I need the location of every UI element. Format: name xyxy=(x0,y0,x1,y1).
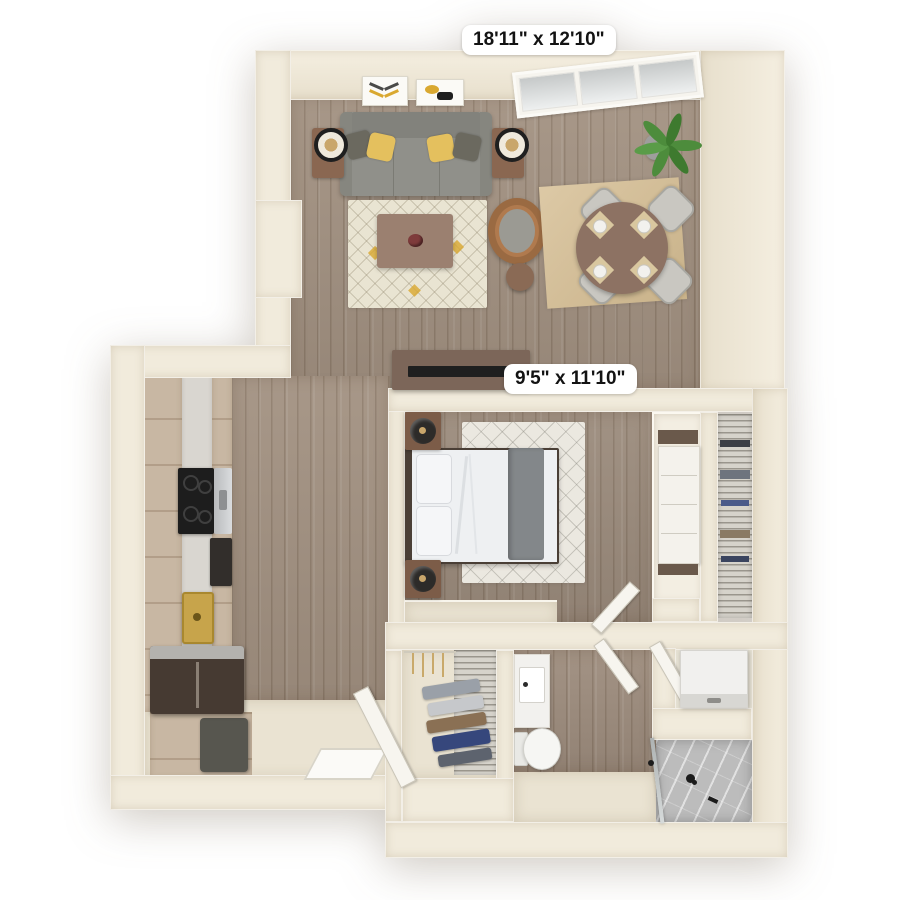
refrigerator-handle xyxy=(196,662,199,708)
window-pane xyxy=(638,58,697,98)
toilet xyxy=(514,728,558,768)
burner xyxy=(198,480,212,494)
linen-shelf-item-2 xyxy=(720,470,750,479)
bed-throw-blanket xyxy=(508,448,544,560)
dresser-shelf-dark-top xyxy=(658,430,698,444)
place-setting xyxy=(630,256,658,284)
wall-bottom-left xyxy=(110,775,390,810)
armchair-cushion xyxy=(499,209,535,253)
hanger xyxy=(412,653,414,674)
coffee-table xyxy=(377,214,453,268)
burner xyxy=(183,506,199,522)
wall-mid-band xyxy=(385,622,788,650)
place-setting xyxy=(586,256,614,284)
hallway-floor xyxy=(232,376,390,702)
dresser-drawer-line xyxy=(661,533,697,534)
range-cooktop xyxy=(178,468,214,534)
rug-diamond-accent xyxy=(408,284,421,297)
washer-handle xyxy=(707,698,721,703)
place-setting xyxy=(630,211,658,239)
potted-plant xyxy=(640,112,696,168)
washer-dryer xyxy=(680,650,748,708)
burner xyxy=(198,510,212,524)
bed-pillow xyxy=(416,454,452,504)
linen-shelf-item-3 xyxy=(721,500,749,506)
window-pane xyxy=(578,65,637,105)
nightstand-lamp-bottom xyxy=(410,566,436,592)
oven-display xyxy=(219,490,227,510)
dresser xyxy=(658,446,700,564)
wall-closet-bath-divider xyxy=(496,650,514,792)
throw-pillow-dark xyxy=(452,132,483,163)
wall-closet-bottom-fill xyxy=(402,778,514,822)
wall-under-nook xyxy=(652,598,700,622)
dishwasher xyxy=(210,538,232,586)
abstract-black-blob xyxy=(437,92,453,100)
plate xyxy=(634,262,654,282)
dresser-drawer-line xyxy=(661,475,697,476)
throw-pillow-yellow xyxy=(426,133,456,163)
sink-drain xyxy=(193,613,201,621)
duvet-fold xyxy=(455,456,468,554)
wall-bottom-right xyxy=(385,822,788,858)
toilet-bowl xyxy=(523,728,561,770)
apartment-floorplan: 18'11" x 12'10" 9'5" x 11'10" xyxy=(0,0,900,900)
refrigerator xyxy=(150,646,244,714)
vanity-faucet xyxy=(523,682,528,687)
ottoman xyxy=(506,263,534,291)
table-lamp-left xyxy=(314,128,348,162)
hanger xyxy=(422,653,424,677)
bathroom-beige-floor xyxy=(514,772,656,822)
bed-pillow xyxy=(416,506,452,556)
wall-bedroom-left xyxy=(388,388,405,650)
bedroom-vestibule-floor xyxy=(405,600,557,624)
wall-art-abstract xyxy=(416,79,464,106)
shower-floor xyxy=(656,740,752,822)
shower-control-valve xyxy=(686,774,695,783)
plate xyxy=(590,217,610,237)
dimension-label-bedroom: 9'5" x 11'10" xyxy=(504,364,637,394)
shower-door-handle xyxy=(648,760,654,766)
floorplan-canvas: 18'11" x 12'10" 9'5" x 11'10" xyxy=(0,0,900,900)
trash-bin xyxy=(200,718,248,772)
dresser-drawer-line xyxy=(661,504,697,505)
linen-shelf-item-1 xyxy=(720,440,750,447)
hanger xyxy=(432,653,434,674)
burner xyxy=(183,475,199,491)
wall-right-upper xyxy=(700,50,785,390)
refrigerator-top xyxy=(150,646,244,659)
throw-pillow-yellow xyxy=(366,132,397,163)
bathroom-vanity xyxy=(514,654,550,728)
tv xyxy=(408,366,514,377)
wall-left-lower xyxy=(110,345,145,810)
range-front-stainless xyxy=(214,468,232,534)
place-setting xyxy=(586,211,614,239)
nightstand-lamp-top xyxy=(410,418,436,444)
linen-shelf-item-4 xyxy=(720,530,750,538)
bed xyxy=(405,448,559,564)
armchair xyxy=(488,198,546,264)
dresser-shelf-dark-bottom xyxy=(658,564,698,575)
window-pane xyxy=(519,72,578,112)
plate xyxy=(634,217,654,237)
duvet-fold xyxy=(469,454,478,554)
coffee-table-centerpiece xyxy=(408,234,423,247)
wall-nook-linen-divider xyxy=(700,412,718,622)
dining-table xyxy=(576,202,668,294)
sofa-armrest-right xyxy=(480,112,492,196)
dimension-label-living-dining: 18'11" x 12'10" xyxy=(462,25,616,55)
table-lamp-right xyxy=(495,128,529,162)
kitchen-sink xyxy=(182,592,214,644)
wall-laundry-bottom xyxy=(652,708,752,740)
wall-column xyxy=(255,200,302,298)
hanger xyxy=(442,653,444,677)
plate xyxy=(590,262,610,282)
wall-art-chevron xyxy=(362,76,408,106)
linen-shelf-item-5 xyxy=(721,556,749,562)
